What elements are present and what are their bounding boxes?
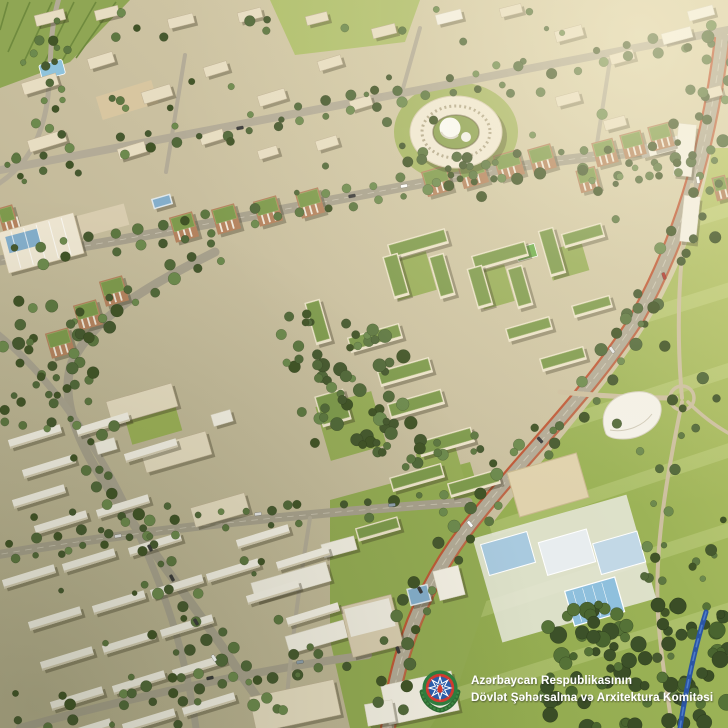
aerial-render-canvas: Azərbaycan Respublikasının Dövlət Şəhərs… (0, 0, 728, 728)
azerbaijan-state-emblem-icon (422, 670, 458, 710)
aerial-city-masterplan-render: Azərbaycan Respublikasının Dövlət Şəhərs… (0, 0, 728, 728)
watermark-line1: Azərbaycan Respublikasının (471, 674, 632, 687)
watermark-line2: Dövlət Şəhərsalma və Arxitektura Komitəs… (471, 691, 713, 704)
vignette-overlay (0, 0, 728, 728)
